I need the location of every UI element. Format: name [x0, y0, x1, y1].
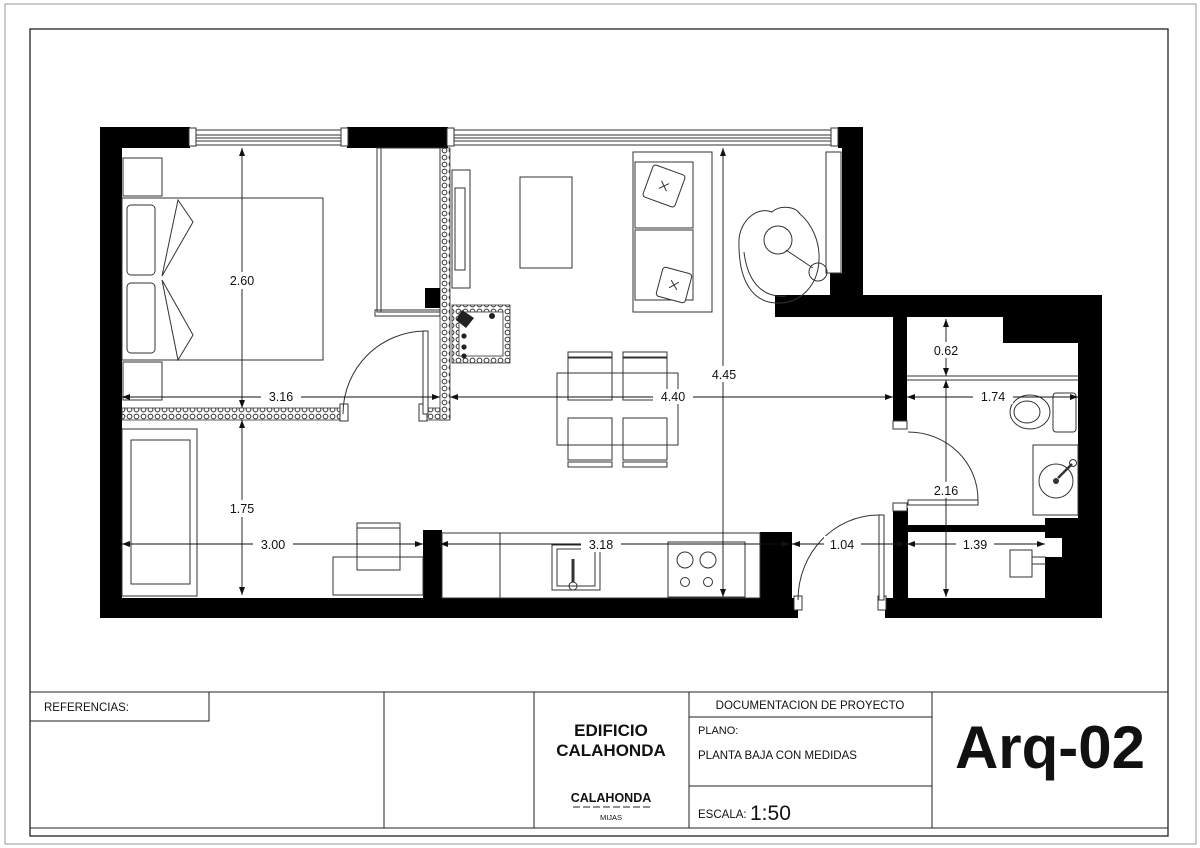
building-name-line2: CALAHONDA: [556, 741, 666, 760]
location-name: CALAHONDA: [571, 791, 652, 805]
drawing-sheet: 2.60 3.16 4.40 4.45 1.74 0.62 2.16 1.75 …: [0, 0, 1200, 848]
dimension-label: 1.39: [963, 538, 987, 552]
door-leaf: [423, 331, 428, 414]
location-municipality: MIJAS: [600, 813, 622, 822]
dimension-label: 4.45: [712, 368, 736, 382]
dimension-label: 1.74: [981, 390, 1005, 404]
dimension-label: 4.40: [661, 390, 685, 404]
dimension-label: 2.16: [934, 484, 958, 498]
dimension-label: 3.16: [269, 390, 293, 404]
plan-svg: 2.60 3.16 4.40 4.45 1.74 0.62 2.16 1.75 …: [0, 0, 1200, 848]
doc-header: DOCUMENTACION DE PROYECTO: [716, 700, 905, 712]
bedroom-window-icon: [189, 128, 348, 146]
plano-label: PLANO:: [698, 725, 738, 737]
living-window-icon: [447, 128, 838, 146]
column: [425, 288, 440, 308]
dimension-label: 2.60: [230, 274, 254, 288]
sheet-code: Arq-02: [955, 714, 1145, 781]
plano-value: PLANTA BAJA CON MEDIDAS: [698, 750, 857, 762]
escala-value: 1:50: [750, 802, 791, 825]
building-name-line1: EDIFICIO: [574, 721, 648, 740]
dimension-label: 0.62: [934, 344, 958, 358]
dimension-label: 1.75: [230, 502, 254, 516]
escala-label: ESCALA:: [698, 809, 747, 821]
door-leaf: [908, 500, 978, 505]
masonry-feature: [452, 305, 510, 363]
water-heater: [1010, 550, 1032, 577]
dimension-label: 3.18: [589, 538, 613, 552]
references-label: REFERENCIAS:: [44, 702, 129, 714]
dimension-label: 1.04: [830, 538, 854, 552]
door-leaf: [879, 515, 884, 600]
dimension-label: 3.00: [261, 538, 285, 552]
